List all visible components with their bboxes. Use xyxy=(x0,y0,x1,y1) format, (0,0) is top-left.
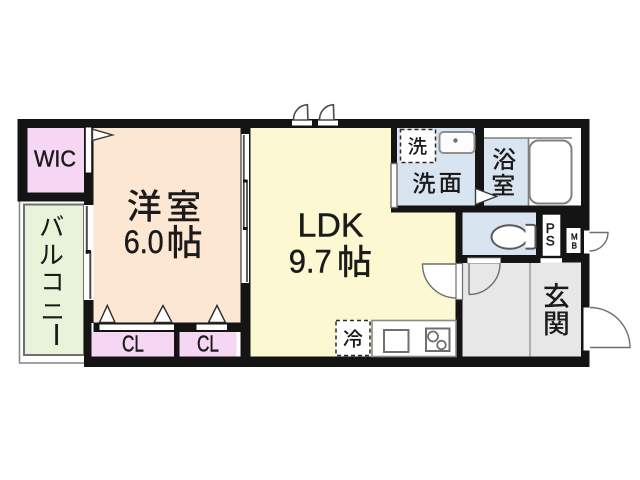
svg-text:CL: CL xyxy=(197,331,219,357)
svg-text:S: S xyxy=(546,234,555,249)
svg-text:B: B xyxy=(572,242,577,251)
svg-text:WIC: WIC xyxy=(34,146,76,172)
svg-text:CL: CL xyxy=(122,331,144,357)
svg-text:LDK: LDK xyxy=(298,208,364,245)
svg-text:6.0: 6.0 xyxy=(124,224,164,260)
svg-text:M: M xyxy=(571,233,578,242)
svg-text:9.7: 9.7 xyxy=(289,244,332,280)
